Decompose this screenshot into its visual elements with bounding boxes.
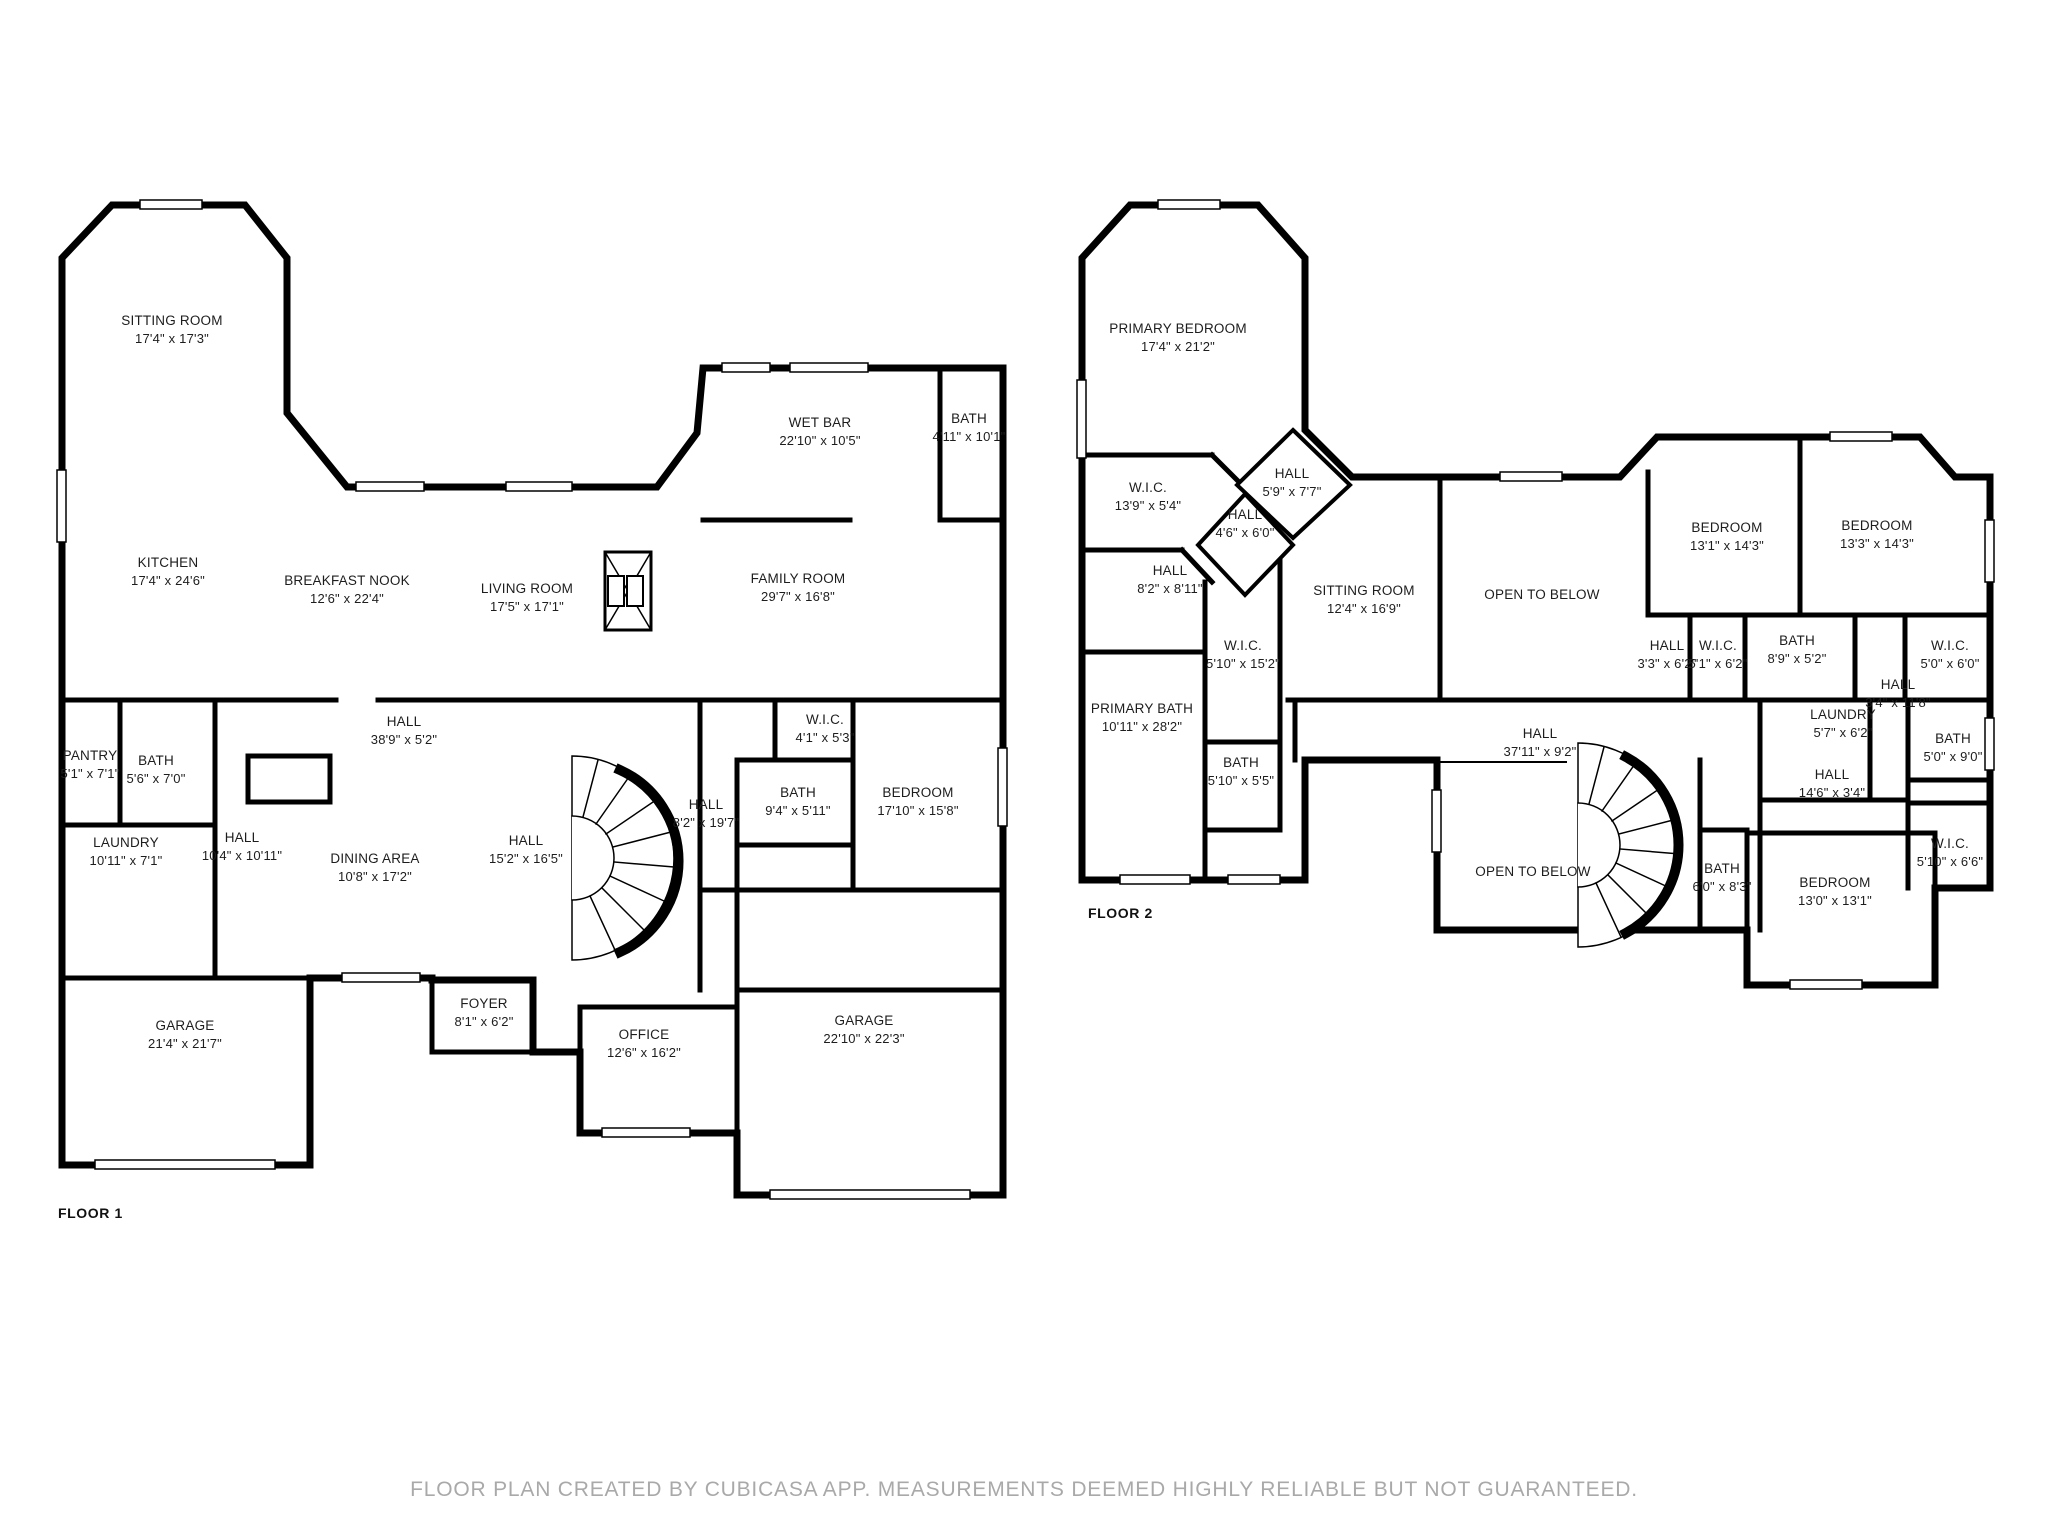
room-label: HALL15'2" x 16'5"	[489, 832, 563, 868]
room-label: W.I.C.5'1" x 6'2"	[1688, 637, 1747, 673]
room-name: OPEN TO BELOW	[1475, 863, 1590, 881]
room-label: BATH5'10" x 5'5"	[1208, 754, 1274, 790]
room-label: HALL4'6" x 6'0"	[1215, 506, 1274, 542]
room-label: BATH6'0" x 8'3"	[1692, 860, 1751, 896]
room-label: HALL37'11" x 9'2"	[1504, 725, 1577, 761]
room-label: HALL8'2" x 8'11"	[1137, 562, 1203, 598]
room-name: BATH	[933, 410, 1006, 428]
room-dimensions: 5'9" x 7'7"	[1262, 483, 1321, 501]
room-dimensions: 17'5" x 17'1"	[481, 598, 573, 616]
room-name: SITTING ROOM	[121, 312, 222, 330]
room-dimensions: 8'2" x 19'7"	[673, 814, 739, 832]
floor-1-label: FLOOR 1	[58, 1205, 123, 1221]
room-dimensions: 17'4" x 24'6"	[131, 572, 205, 590]
room-name: HALL	[1137, 562, 1203, 580]
room-name: LAUNDRY	[90, 834, 163, 852]
room-label: BEDROOM13'1" x 14'3"	[1690, 519, 1764, 555]
floorplan-page: SITTING ROOM17'4" x 17'3"KITCHEN17'4" x …	[0, 0, 2048, 1536]
room-dimensions: 5'7" x 6'2"	[1810, 724, 1876, 742]
room-name: W.I.C.	[795, 711, 854, 729]
room-label: BATH4'11" x 10'1"	[933, 410, 1006, 446]
room-name: BATH	[1208, 754, 1274, 772]
room-dimensions: 21'4" x 21'7"	[148, 1035, 222, 1053]
room-label: W.I.C.13'9" x 5'4"	[1115, 479, 1181, 515]
room-dimensions: 4'1" x 5'3"	[795, 729, 854, 747]
room-label: BEDROOM13'0" x 13'1"	[1798, 874, 1872, 910]
room-dimensions: 29'7" x 16'8"	[751, 588, 846, 606]
room-dimensions: 8'1" x 6'2"	[454, 1013, 513, 1031]
room-label: OFFICE12'6" x 16'2"	[607, 1026, 681, 1062]
room-labels-layer: SITTING ROOM17'4" x 17'3"KITCHEN17'4" x …	[0, 0, 2048, 1536]
room-name: HALL	[673, 796, 739, 814]
room-name: FOYER	[454, 995, 513, 1013]
room-label: BATH5'0" x 9'0"	[1923, 730, 1982, 766]
room-dimensions: 10'8" x 17'2"	[330, 868, 419, 886]
room-name: HALL	[489, 832, 563, 850]
room-dimensions: 8'2" x 8'11"	[1137, 580, 1203, 598]
floor-2-label: FLOOR 2	[1088, 905, 1153, 921]
room-label: OPEN TO BELOW	[1475, 863, 1590, 881]
room-name: PRIMARY BEDROOM	[1109, 320, 1247, 338]
room-name: BATH	[1923, 730, 1982, 748]
room-label: HALL5'9" x 7'7"	[1262, 465, 1321, 501]
room-dimensions: 5'10" x 15'2"	[1206, 655, 1280, 673]
room-name: BATH	[765, 784, 831, 802]
room-name: HALL	[1799, 766, 1865, 784]
room-dimensions: 14'6" x 3'4"	[1799, 784, 1865, 802]
footer-disclaimer: FLOOR PLAN CREATED BY CUBICASA APP. MEAS…	[0, 1478, 2048, 1502]
room-label: W.I.C.5'10" x 6'6"	[1917, 835, 1983, 871]
room-label: BEDROOM17'10" x 15'8"	[877, 784, 958, 820]
room-name: PANTRY	[60, 747, 119, 765]
room-label: GARAGE21'4" x 21'7"	[148, 1017, 222, 1053]
room-dimensions: 38'9" x 5'2"	[371, 731, 437, 749]
room-dimensions: 22'10" x 10'5"	[779, 432, 860, 450]
room-label: WET BAR22'10" x 10'5"	[779, 414, 860, 450]
room-dimensions: 13'1" x 14'3"	[1690, 537, 1764, 555]
room-dimensions: 5'6" x 7'0"	[126, 770, 185, 788]
room-label: GARAGE22'10" x 22'3"	[823, 1012, 904, 1048]
room-label: HALL10'4" x 10'11"	[202, 829, 282, 865]
room-label: W.I.C.4'1" x 5'3"	[795, 711, 854, 747]
room-dimensions: 15'2" x 16'5"	[489, 850, 563, 868]
room-dimensions: 6'0" x 8'3"	[1692, 878, 1751, 896]
room-dimensions: 12'6" x 22'4"	[284, 590, 410, 608]
room-label: PRIMARY BEDROOM17'4" x 21'2"	[1109, 320, 1247, 356]
room-dimensions: 5'1" x 6'2"	[1688, 655, 1747, 673]
room-label: W.I.C.5'10" x 15'2"	[1206, 637, 1280, 673]
room-name: KITCHEN	[131, 554, 205, 572]
room-label: BATH8'9" x 5'2"	[1767, 632, 1826, 668]
room-label: BEDROOM13'3" x 14'3"	[1840, 517, 1914, 553]
room-dimensions: 9'4" x 5'11"	[765, 802, 831, 820]
room-dimensions: 4'11" x 10'1"	[933, 428, 1006, 446]
room-name: SITTING ROOM	[1313, 582, 1414, 600]
room-label: SITTING ROOM12'4" x 16'9"	[1313, 582, 1414, 618]
room-dimensions: 37'11" x 9'2"	[1504, 743, 1577, 761]
room-dimensions: 13'9" x 5'4"	[1115, 497, 1181, 515]
room-dimensions: 12'4" x 16'9"	[1313, 600, 1414, 618]
room-name: W.I.C.	[1688, 637, 1747, 655]
room-label: FOYER8'1" x 6'2"	[454, 995, 513, 1031]
room-name: FAMILY ROOM	[751, 570, 846, 588]
room-label: BREAKFAST NOOK12'6" x 22'4"	[284, 572, 410, 608]
room-dimensions: 10'11" x 28'2"	[1091, 718, 1193, 736]
room-dimensions: 5'10" x 6'6"	[1917, 853, 1983, 871]
room-name: DINING AREA	[330, 850, 419, 868]
room-name: GARAGE	[823, 1012, 904, 1030]
room-dimensions: 8'9" x 5'2"	[1767, 650, 1826, 668]
room-label: DINING AREA10'8" x 17'2"	[330, 850, 419, 886]
room-label: LIVING ROOM17'5" x 17'1"	[481, 580, 573, 616]
room-dimensions: 17'4" x 21'2"	[1109, 338, 1247, 356]
room-name: HALL	[1262, 465, 1321, 483]
room-dimensions: 13'0" x 13'1"	[1798, 892, 1872, 910]
room-dimensions: 13'3" x 14'3"	[1840, 535, 1914, 553]
room-dimensions: 22'10" x 22'3"	[823, 1030, 904, 1048]
room-dimensions: 5'10" x 5'5"	[1208, 772, 1274, 790]
room-dimensions: 5'0" x 9'0"	[1923, 748, 1982, 766]
room-name: BATH	[1767, 632, 1826, 650]
room-name: BEDROOM	[1690, 519, 1764, 537]
room-name: HALL	[1215, 506, 1274, 524]
room-dimensions: 10'11" x 7'1"	[90, 852, 163, 870]
room-dimensions: 3'4" x 11'8"	[1865, 694, 1931, 712]
room-dimensions: 10'4" x 10'11"	[202, 847, 282, 865]
room-label: W.I.C.5'0" x 6'0"	[1920, 637, 1979, 673]
room-label: BATH9'4" x 5'11"	[765, 784, 831, 820]
room-label: HALL8'2" x 19'7"	[673, 796, 739, 832]
room-dimensions: 5'1" x 7'1"	[60, 765, 119, 783]
room-label: LAUNDRY10'11" x 7'1"	[90, 834, 163, 870]
room-dimensions: 5'0" x 6'0"	[1920, 655, 1979, 673]
room-label: OPEN TO BELOW	[1484, 586, 1599, 604]
room-name: W.I.C.	[1917, 835, 1983, 853]
room-name: HALL	[1504, 725, 1577, 743]
room-label: HALL3'4" x 11'8"	[1865, 676, 1931, 712]
room-label: BATH5'6" x 7'0"	[126, 752, 185, 788]
room-label: PRIMARY BATH10'11" x 28'2"	[1091, 700, 1193, 736]
room-name: BATH	[126, 752, 185, 770]
room-dimensions: 12'6" x 16'2"	[607, 1044, 681, 1062]
room-name: BEDROOM	[1798, 874, 1872, 892]
room-name: W.I.C.	[1206, 637, 1280, 655]
room-label: FAMILY ROOM29'7" x 16'8"	[751, 570, 846, 606]
room-name: OPEN TO BELOW	[1484, 586, 1599, 604]
room-label: KITCHEN17'4" x 24'6"	[131, 554, 205, 590]
room-name: WET BAR	[779, 414, 860, 432]
room-name: HALL	[202, 829, 282, 847]
room-dimensions: 17'4" x 17'3"	[121, 330, 222, 348]
room-label: PANTRY5'1" x 7'1"	[60, 747, 119, 783]
room-dimensions: 17'10" x 15'8"	[877, 802, 958, 820]
room-name: LIVING ROOM	[481, 580, 573, 598]
room-label: SITTING ROOM17'4" x 17'3"	[121, 312, 222, 348]
room-name: BREAKFAST NOOK	[284, 572, 410, 590]
room-name: HALL	[1865, 676, 1931, 694]
room-name: GARAGE	[148, 1017, 222, 1035]
room-label: HALL14'6" x 3'4"	[1799, 766, 1865, 802]
room-label: HALL38'9" x 5'2"	[371, 713, 437, 749]
room-name: BEDROOM	[877, 784, 958, 802]
room-name: PRIMARY BATH	[1091, 700, 1193, 718]
room-dimensions: 4'6" x 6'0"	[1215, 524, 1274, 542]
room-name: BATH	[1692, 860, 1751, 878]
room-name: HALL	[371, 713, 437, 731]
room-name: OFFICE	[607, 1026, 681, 1044]
room-name: W.I.C.	[1115, 479, 1181, 497]
room-name: BEDROOM	[1840, 517, 1914, 535]
room-name: W.I.C.	[1920, 637, 1979, 655]
